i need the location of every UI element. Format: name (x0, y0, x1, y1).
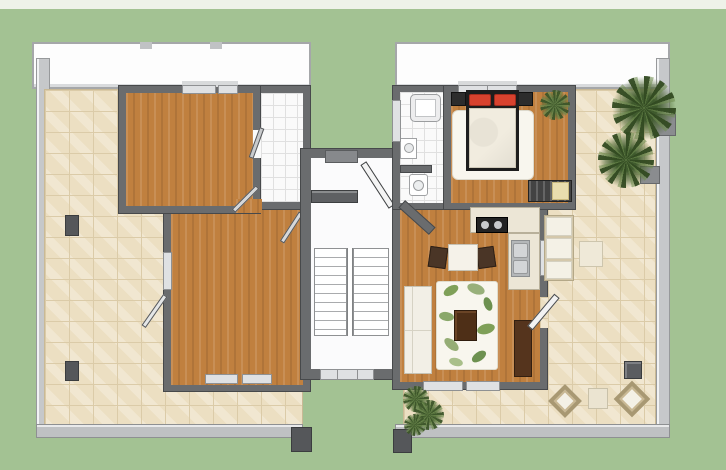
rug-leaf (482, 296, 494, 312)
dining-chair-right (476, 246, 497, 269)
left-terrace-post-lower (65, 361, 79, 381)
left-terrace-corner-post (291, 427, 312, 452)
nightstand-left (451, 92, 466, 106)
floor-plan-canvas (0, 0, 726, 470)
living-south-window-1 (423, 381, 463, 391)
palm-tree-1 (612, 76, 676, 140)
rug-leaf (448, 356, 464, 367)
left-north-window-2 (218, 85, 238, 94)
left-roof-vent-1 (140, 42, 152, 49)
left-south-room-floor (171, 206, 303, 385)
terrace-shrub-3 (404, 414, 426, 436)
left-south-window-1 (205, 374, 238, 384)
left-loggia-floor (261, 93, 303, 202)
bathroom-west-window (392, 100, 401, 142)
rug-leaf (476, 322, 496, 336)
tv-cabinet (514, 320, 532, 377)
rug-leaf (438, 311, 454, 322)
left-terrace-south-rail (36, 424, 303, 438)
bedroom-plant (540, 90, 570, 120)
bed-duvet (469, 108, 516, 168)
left-unit-entrance-door-leaf (311, 190, 358, 203)
rug-leaf (466, 281, 486, 297)
dining-chair-left (428, 246, 449, 269)
toilet-bowl (413, 180, 424, 191)
left-terrace-post-upper (65, 215, 79, 236)
left-north-room-floor (126, 93, 253, 206)
bedroom-dresser-top (552, 182, 569, 200)
sofa (404, 286, 432, 374)
rug-leaf (470, 348, 488, 365)
left-north-window-1 (182, 85, 216, 94)
stairwell-north-cabinet (325, 150, 358, 163)
coffee-table (454, 310, 477, 341)
left-south-window-2 (242, 374, 272, 384)
grill-box (624, 361, 642, 379)
palm-tree-2 (598, 132, 654, 188)
left-roof-band (32, 42, 311, 89)
lounger-cushion-2 (546, 238, 572, 259)
lounger-cushion-3 (546, 261, 572, 279)
terrace-table-north (579, 241, 603, 267)
cooktop-burner-1 (481, 221, 489, 229)
stairs-left-flight (314, 248, 347, 336)
bathroom-partition-wall (400, 165, 432, 173)
washbasin-bowl (404, 143, 414, 153)
sink-basin-1 (513, 243, 528, 258)
cooktop-burner-2 (494, 221, 502, 229)
bed-pillow-right (494, 94, 516, 106)
stairwell-south-window (320, 369, 374, 380)
lounger-cushion-1 (546, 217, 572, 236)
top-sky-strip (0, 0, 726, 9)
nightstand-right (518, 92, 533, 106)
bed-pillow-left (469, 94, 491, 106)
living-south-window-2 (466, 381, 500, 391)
dining-table (448, 244, 478, 271)
sink-basin-2 (513, 260, 528, 274)
terrace-table-south (588, 388, 608, 409)
left-west-window (163, 252, 172, 290)
stairs-right-flight (353, 248, 389, 336)
rug-leaf (442, 283, 460, 299)
bathtub (410, 94, 441, 122)
left-roof-vent-2 (210, 42, 222, 49)
